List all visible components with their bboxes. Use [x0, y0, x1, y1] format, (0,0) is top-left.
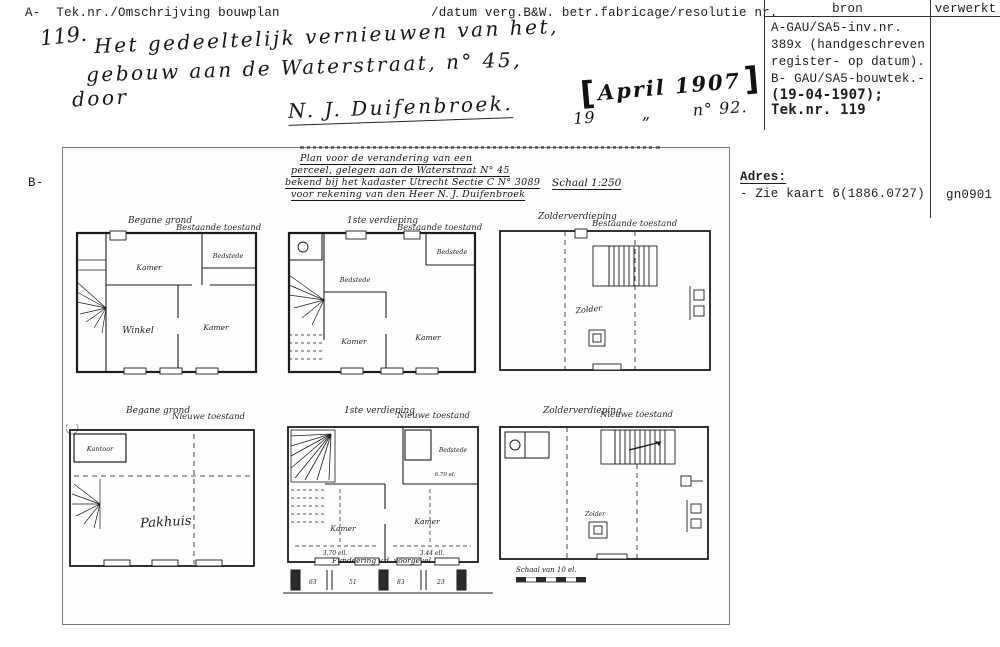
room-label: Bedstede: [339, 276, 371, 284]
foundation-number: 51: [349, 579, 357, 586]
handwritten-number: 119.: [39, 22, 88, 51]
spiral-staircase: [291, 430, 335, 522]
floor-plan-ground-existing: Kamer Bedstede Winkel Kamer: [74, 230, 259, 375]
table-header-verwerkt: verwerkt: [931, 2, 1000, 16]
windows: [104, 560, 222, 566]
plan6-condition: Nieuwe toestand: [600, 410, 673, 420]
room-label: Zolder: [574, 304, 604, 316]
floor-plan-ground-new: Kantoor Pakhuis: [66, 424, 258, 569]
ink-smudge: [66, 424, 78, 434]
dimension-label: 6.70 el.: [435, 472, 456, 478]
drawing-title-line2: perceel, gelegen aan de Waterstraat N° 4…: [291, 165, 510, 176]
room-label: Pakhuis: [139, 514, 192, 532]
drawing-title-line1: Plan voor de verandering van een: [300, 153, 472, 164]
archive-card: A-Tek.nr./Omschrijving bouwplan /datum v…: [0, 0, 1000, 647]
chimney: [589, 522, 607, 538]
drawing-title-line3: bekend bij het kadaster Utrecht Sectie C…: [285, 177, 540, 188]
foundation-note: Fundeering v.d. voorgevel: [332, 556, 431, 565]
roof-lines: [567, 427, 637, 559]
door-sill: [593, 364, 621, 370]
staircase: [601, 430, 675, 464]
date-number: n° 92.: [692, 97, 748, 120]
room-label: Bedstede: [436, 248, 468, 256]
archive-code: gn0901: [946, 188, 992, 202]
room-label: Kamer: [135, 263, 162, 272]
dormer: [575, 229, 587, 238]
bron-line: register- op datum).: [771, 54, 925, 71]
windows: [341, 231, 438, 374]
room-label: Zolder: [584, 511, 606, 518]
staircase: [289, 275, 324, 359]
bron-line-bold: Tek.nr. 119: [771, 103, 925, 118]
staircase: [77, 260, 106, 333]
foundation-number: 63: [309, 579, 317, 586]
roof-lines: [565, 231, 635, 370]
scalebar-note: Schaal van 10 el.: [516, 566, 577, 574]
dimension-lines: [295, 489, 471, 546]
floor-plan-first-new: Kamer Kamer Bedstede 3.70 ell. 3.44 ell.…: [285, 424, 481, 566]
staircase: [72, 479, 100, 529]
bron-line: 389x (handgeschreven: [771, 37, 925, 54]
table-header-bron: bron: [765, 2, 930, 16]
drawing-title-line4: voor rekening van den Heer N. J. Duifenb…: [291, 189, 525, 200]
closet: [505, 432, 549, 458]
bron-cell: A-GAU/SA5-inv.nr. 389x (handgeschreven r…: [771, 20, 925, 118]
stamp-bracket-right: ]: [743, 66, 760, 93]
bron-line-bold: (19-04-1907);: [771, 88, 925, 103]
wall-recess: [681, 476, 703, 532]
table-left-border: [764, 0, 765, 130]
stamp-bracket-left: [: [579, 81, 596, 108]
header-left: A-Tek.nr./Omschrijving bouwplan: [25, 6, 280, 20]
scale-bar-segments: [516, 577, 586, 582]
room-label: Kamer: [340, 337, 367, 346]
fixture: [298, 242, 308, 252]
chimney: [589, 330, 605, 346]
room-label: Kamer: [413, 517, 440, 526]
adres-label: Adres:: [740, 170, 786, 184]
table-column-border: [930, 0, 931, 218]
room-label: Winkel: [122, 326, 154, 336]
date-year: 19: [573, 108, 597, 129]
construction-lines: [74, 434, 252, 564]
room-label: Bedstede: [212, 252, 244, 260]
door-sill: [597, 554, 627, 559]
adres-value: - Zie kaart 6(1886.0727): [740, 187, 925, 201]
floor-plan-attic-new: Zolder: [497, 424, 715, 566]
floor-plan-first-existing: Bedstede Bedstede Kamer Kamer: [286, 230, 478, 375]
staircase: [593, 246, 657, 286]
bron-line: B- GAU/SA5-bouwtek.-: [771, 71, 925, 88]
drawing-scale: Schaal 1:250: [552, 177, 621, 189]
handwritten-signature: N. J. Duifenbroek.: [288, 91, 514, 126]
section-b-label: B-: [28, 176, 43, 190]
header-a-label: A-: [25, 6, 40, 20]
room-label: Kamer: [202, 323, 229, 332]
header-left-title: Tek.nr./Omschrijving bouwplan: [56, 6, 279, 20]
plan5-condition: Nieuwe toestand: [397, 411, 470, 421]
room-label: Kamer: [414, 333, 441, 342]
room-label: Kantoor: [86, 445, 114, 453]
handwritten-door: door: [71, 85, 129, 112]
outer-wall: [500, 427, 708, 559]
outer-wall: [500, 231, 710, 370]
scale-bar: [516, 577, 586, 583]
table-header-rule: [764, 16, 1000, 17]
room-label: Kamer: [329, 524, 356, 533]
foundation-plan-strip: 63 51 83 23: [283, 566, 493, 594]
bron-line: A-GAU/SA5-inv.nr.: [771, 20, 925, 37]
date-ditto-mark: „: [641, 104, 652, 124]
wall-recess: [690, 286, 704, 320]
floor-plan-attic-existing: Zolder: [497, 228, 713, 373]
foundation-number: 23: [436, 579, 445, 586]
plan4-condition: Nieuwe toestand: [172, 412, 245, 422]
room-label: Bedstede: [438, 447, 468, 454]
foundation-number: 83: [397, 579, 405, 586]
scan-smudge: [300, 146, 660, 149]
